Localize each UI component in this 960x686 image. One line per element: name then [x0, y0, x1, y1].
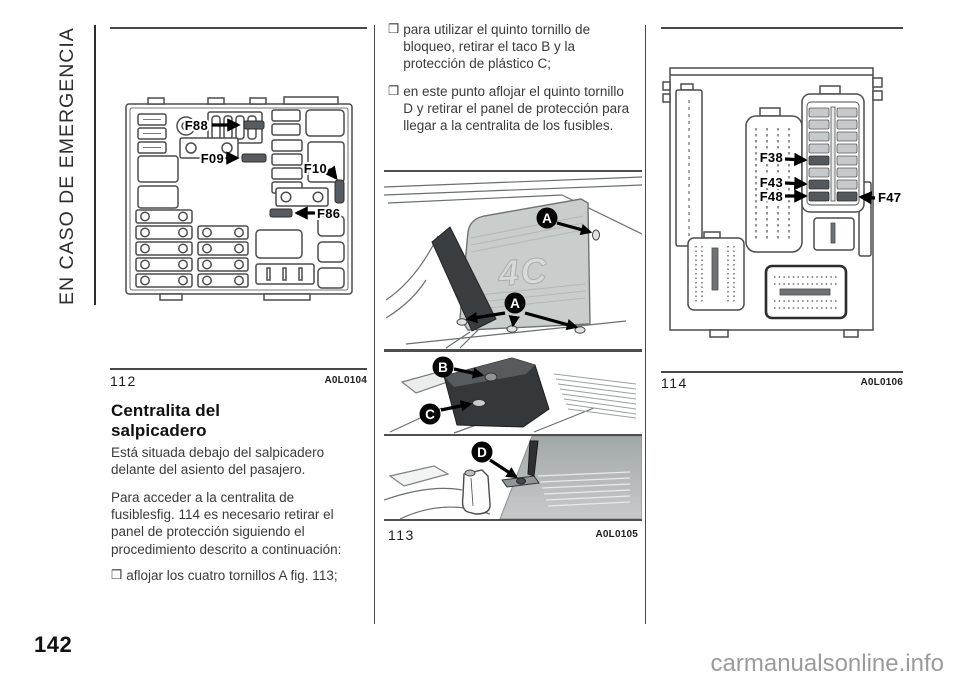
figure-114-caption: 114 A0L0106	[661, 375, 903, 391]
figure-113-panel-d: D	[384, 436, 642, 519]
fuse-label-f43: F43	[760, 175, 783, 190]
figure-114-code: A0L0106	[860, 377, 903, 388]
column1-top-rule	[110, 27, 367, 29]
screw-a-top	[593, 230, 600, 240]
callout-d-letter: D	[477, 445, 487, 460]
figure-112-caption: 112 A0L0104	[110, 373, 367, 389]
list-item-step3: ❒ en este punto aflojar el quinto tornil…	[388, 83, 646, 135]
fuse-f88	[244, 121, 264, 129]
bracket-screw	[465, 470, 475, 476]
callout-b-letter: B	[438, 360, 448, 375]
fuse-f09	[242, 154, 266, 162]
floor-mat	[390, 466, 448, 486]
plug-b	[485, 373, 497, 381]
figure-114-number: 114	[661, 375, 688, 391]
fuse-f48	[809, 192, 829, 201]
screw-a-right	[575, 327, 585, 333]
paragraph-procedure: Para acceder a la centralita de fusibles…	[111, 489, 369, 558]
figure-112-caption-rule	[110, 368, 367, 370]
figure-113-code: A0L0105	[595, 529, 638, 540]
fuse-label-f38: F38	[760, 150, 783, 165]
figure-113-panel-bc: B C	[384, 352, 642, 434]
bullet-square-icon: ❒	[388, 83, 399, 100]
figure-112-code: A0L0104	[324, 375, 367, 386]
bullet-square-icon: ❒	[388, 21, 399, 38]
fuse-label-f88: F88	[185, 118, 208, 133]
figure-113-illustration: 4C A A	[384, 170, 642, 521]
column3-top-rule	[661, 27, 903, 29]
section-label-vertical: EN CASO DE EMERGENCIA	[56, 27, 92, 305]
slot-c	[473, 399, 486, 406]
fuse-label-f86: F86	[317, 206, 340, 221]
figure-112-number: 112	[110, 373, 137, 389]
fuse-f47	[837, 192, 857, 201]
fuse-f86	[270, 209, 292, 217]
fuse-label-f47: F47	[878, 190, 901, 205]
list-item-text: para utilizar el quinto tornillo de bloq…	[403, 21, 590, 73]
bracket	[463, 470, 491, 514]
list-item-step1: ❒ aflojar los cuatro tornillos A fig. 11…	[111, 567, 369, 584]
callout-c-letter: C	[425, 407, 435, 422]
manual-page: EN CASO DE EMERGENCIA	[0, 0, 960, 686]
callout-a-letter: A	[542, 211, 552, 226]
panel-logo-4c: 4C	[496, 249, 550, 293]
figure-112-fusebox-diagram: F88 F09 F10 F86	[120, 92, 358, 306]
fuse-label-f48: F48	[760, 189, 783, 204]
watermark: carmanualsonline.info	[711, 650, 944, 678]
fuse-f43	[809, 180, 829, 189]
list-item-text: aflojar los cuatro tornillos A fig. 113;	[126, 567, 337, 584]
figure-114-caption-rule	[661, 371, 903, 373]
fuse-label-f09: F09	[201, 151, 224, 166]
screw-a-center	[507, 326, 517, 332]
screw-d	[517, 478, 526, 484]
fuse-f38	[809, 156, 829, 165]
paragraph-location: Está situada debajo del salpicadero dela…	[111, 444, 369, 478]
figure-113-number: 113	[388, 527, 415, 543]
section-label-rule	[94, 25, 96, 305]
screw-a-left	[457, 319, 467, 325]
fuse-label-f10: F10	[304, 161, 327, 176]
steps-list: ❒ para utilizar el quinto tornillo de bl…	[388, 21, 646, 144]
list-item-text: en este punto aflojar el quinto tornillo…	[403, 83, 629, 135]
column-divider-1	[374, 25, 375, 624]
list-item-step2: ❒ para utilizar el quinto tornillo de bl…	[388, 21, 646, 73]
fuse-f10	[335, 180, 344, 203]
page-number: 142	[34, 632, 72, 658]
bullet-square-icon: ❒	[111, 567, 122, 584]
figure-114-fusebox-diagram: F38 F43 F48 F47	[662, 58, 905, 342]
figure-113-panel-a: 4C A A	[384, 172, 642, 349]
page-title: Centralita del salpicadero	[111, 401, 367, 440]
figure-113-caption: 113 A0L0105	[388, 527, 638, 543]
callout-a-letter: A	[510, 296, 520, 311]
